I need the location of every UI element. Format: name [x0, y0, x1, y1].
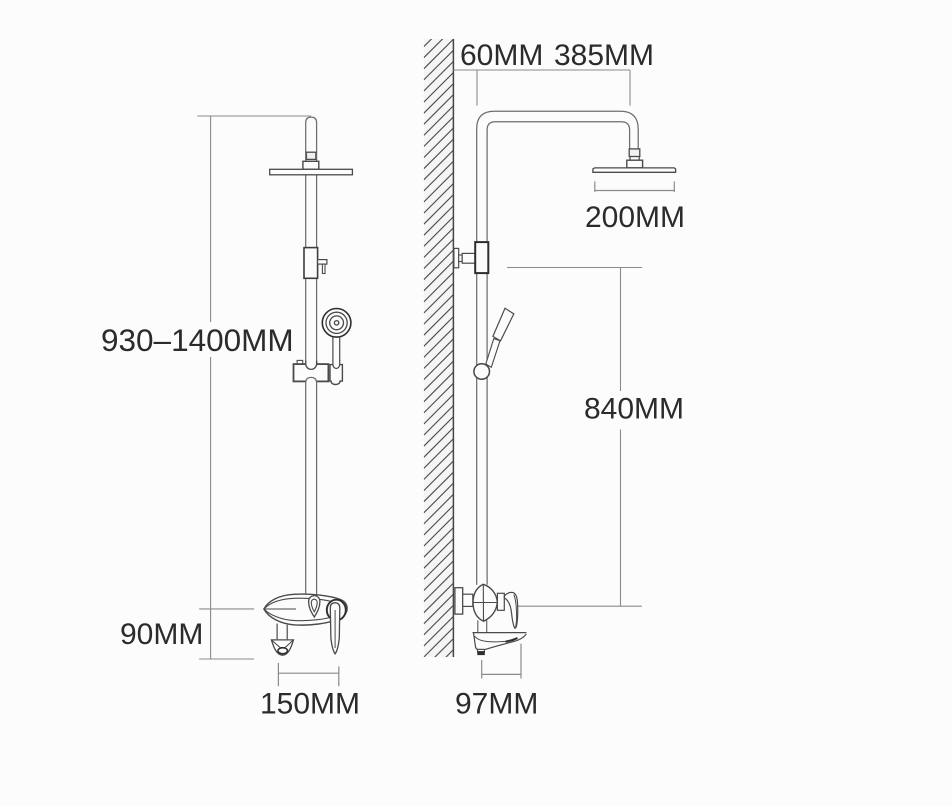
svg-text:97MM: 97MM — [455, 687, 538, 720]
svg-text:60MM: 60MM — [460, 39, 543, 72]
svg-text:200MM: 200MM — [585, 201, 685, 234]
svg-text:90MM: 90MM — [120, 618, 203, 651]
svg-text:840MM: 840MM — [584, 393, 684, 426]
svg-text:930–1400MM: 930–1400MM — [101, 322, 294, 358]
svg-text:385MM: 385MM — [554, 39, 654, 72]
svg-text:150MM: 150MM — [260, 688, 360, 721]
